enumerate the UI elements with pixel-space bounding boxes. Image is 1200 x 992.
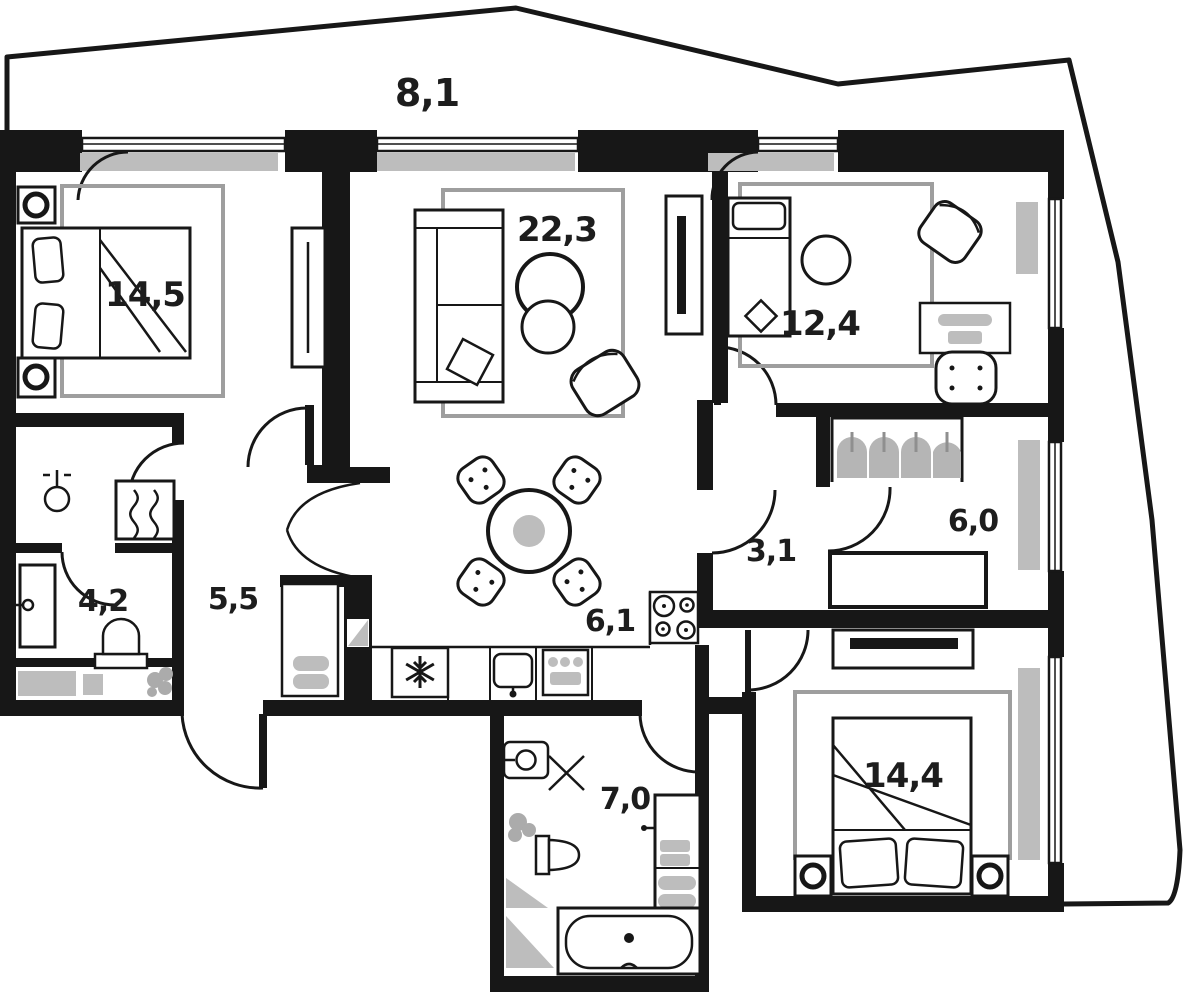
shelf <box>18 671 76 696</box>
nightstand-lamp <box>18 358 55 397</box>
window-right-dressing <box>1018 440 1061 571</box>
shaft-box <box>346 618 370 648</box>
wardrobe-icon <box>830 553 986 607</box>
tv-console-icon <box>666 196 702 334</box>
floor-plan-drawing: 8,1 14,5 22,3 12,4 6,0 3,1 5,5 4,2 6,1 7… <box>0 0 1200 992</box>
shoe-cabinet-icon <box>282 584 338 696</box>
bed-icon <box>833 718 971 894</box>
area-label-kitchen: 6,1 <box>585 604 635 639</box>
pillow <box>839 838 898 888</box>
plant-icon <box>508 813 536 842</box>
shower-tray-icon <box>16 565 55 647</box>
wall-sink-icon <box>504 742 548 778</box>
armchair-icon <box>565 344 644 421</box>
shower-screen <box>549 756 584 790</box>
pillow <box>733 203 785 229</box>
area-label-balcony: 8,1 <box>395 71 459 115</box>
oven-icon <box>543 650 588 695</box>
dining-set <box>453 452 605 610</box>
shelf <box>506 878 548 908</box>
window-right-bedroom2 <box>1016 199 1061 328</box>
entry-door <box>182 714 267 788</box>
area-label-hallway: 3,1 <box>746 534 796 569</box>
washing-machine-icon <box>116 481 174 539</box>
nightstand-lamp <box>795 856 831 896</box>
desk-icon <box>920 303 1010 353</box>
toilet-icon <box>536 836 579 874</box>
area-label-bedroom-3: 14,4 <box>863 756 943 796</box>
clothes-hangers-icon <box>837 432 961 478</box>
ottoman-icon <box>936 352 996 404</box>
nightstand-lamp <box>18 187 55 223</box>
area-label-bedroom-2: 12,4 <box>780 304 860 344</box>
stove-icon <box>650 592 698 643</box>
laptop <box>938 314 992 326</box>
area-label-living: 22,3 <box>517 210 597 250</box>
toilet-icon <box>95 619 147 668</box>
area-label-corridor: 5,5 <box>208 582 258 617</box>
round-rug <box>802 236 850 284</box>
bedroom1-door <box>248 405 314 467</box>
sofa-icon <box>415 210 503 402</box>
window-top-living <box>377 138 578 171</box>
wardrobe-icon <box>292 228 325 367</box>
corridor-double-door <box>287 483 360 578</box>
radiator <box>1018 668 1040 860</box>
floor-plan-page: 8,1 14,5 22,3 12,4 6,0 3,1 5,5 4,2 6,1 7… <box>0 0 1200 992</box>
bedroom3-door <box>745 630 808 692</box>
area-label-dressing: 6,0 <box>948 504 998 539</box>
area-label-bedroom-1: 14,5 <box>105 275 185 315</box>
bathtub-icon <box>558 908 700 974</box>
shelf <box>83 674 103 695</box>
radiator <box>1018 440 1040 570</box>
shelf <box>506 916 554 968</box>
area-label-bath-main: 7,0 <box>600 782 650 817</box>
window-right-bedroom3 <box>1018 657 1061 863</box>
bathroom-main-door <box>640 714 700 772</box>
wall-sink-icon <box>43 470 71 511</box>
nightstand-lamp <box>972 856 1008 896</box>
table-centerpiece <box>513 515 545 547</box>
bedroom-2-furniture <box>728 184 1010 404</box>
desk-chair-icon <box>914 196 986 267</box>
coffee-table-icon <box>522 301 574 353</box>
bathroom-main-fixtures <box>504 742 700 974</box>
plant-icon <box>147 667 173 697</box>
fridge-snowflake-icon <box>392 648 448 697</box>
pillow <box>904 838 963 888</box>
radiator <box>1016 202 1038 274</box>
area-label-bath-small: 4,2 <box>78 584 128 619</box>
hall-to-dressing-door <box>828 487 890 551</box>
dresser-tv-icon <box>833 630 973 668</box>
kitchen-sink-icon <box>494 654 532 698</box>
